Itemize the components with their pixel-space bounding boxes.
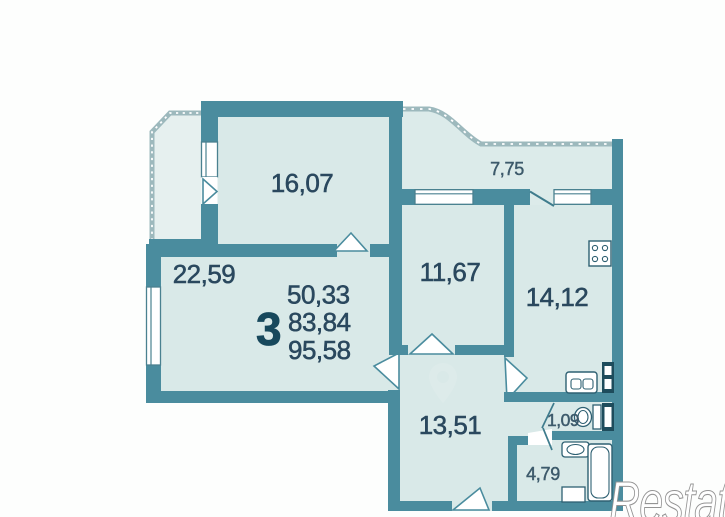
svg-text:3: 3: [256, 303, 282, 355]
svg-text:83,84: 83,84: [288, 307, 351, 337]
svg-text:22,59: 22,59: [173, 259, 236, 289]
svg-text:1,09: 1,09: [547, 410, 579, 430]
svg-text:Restate: Restate: [609, 470, 725, 517]
svg-text:11,67: 11,67: [420, 257, 481, 287]
svg-text:50,33: 50,33: [287, 280, 350, 310]
svg-text:14,12: 14,12: [526, 282, 589, 312]
svg-text:16,07: 16,07: [271, 168, 334, 198]
svg-text:7,75: 7,75: [490, 159, 524, 179]
svg-text:13,51: 13,51: [419, 410, 482, 440]
svg-text:4,79: 4,79: [526, 464, 560, 484]
svg-text:95,58: 95,58: [288, 335, 351, 365]
